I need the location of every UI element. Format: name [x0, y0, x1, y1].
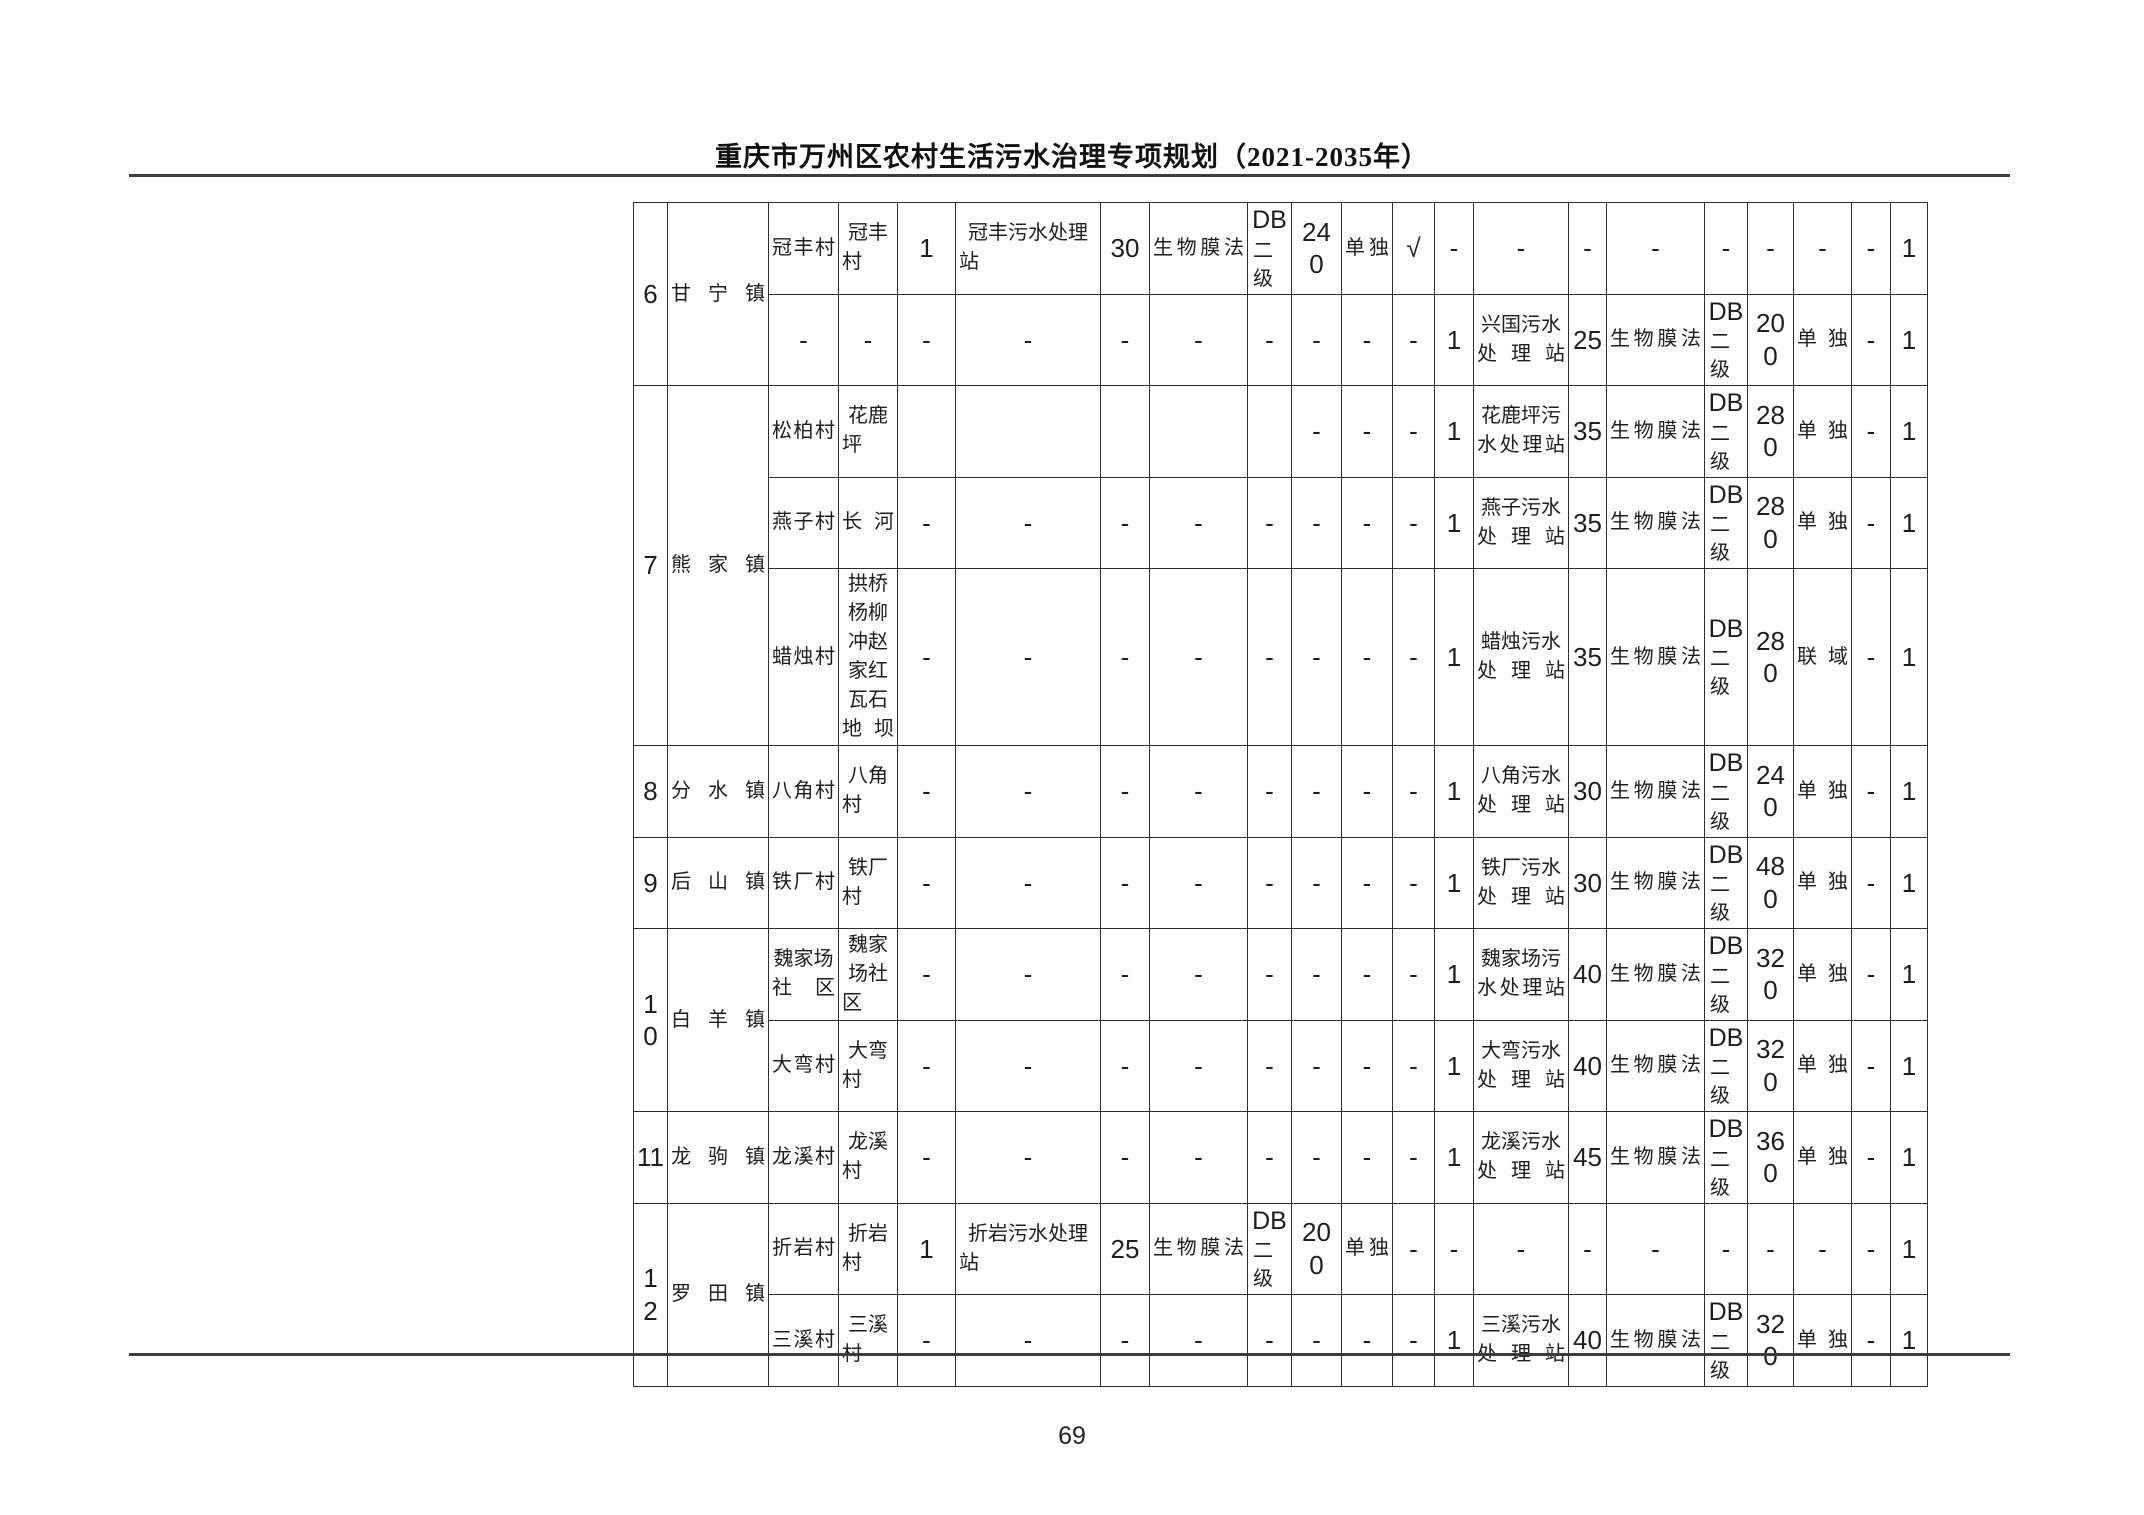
table-cell: -	[1101, 1112, 1150, 1204]
table-cell: DB二级	[1705, 477, 1748, 569]
table-cell: -	[1292, 386, 1342, 478]
table-cell: -	[956, 929, 1101, 1021]
table-cell: -	[1248, 1112, 1292, 1204]
table-cell: -	[956, 837, 1101, 929]
table-cell: DB二级	[1248, 1203, 1292, 1295]
table-cell: DB二级	[1705, 746, 1748, 838]
table-cell: 1	[1435, 569, 1474, 746]
table-row: 燕子村长河--------1燕子污水处理站35生物膜法DB二级280单独-1	[634, 477, 1928, 569]
table-cell: 单独	[1794, 1020, 1852, 1112]
table-cell: 熊家镇	[668, 386, 769, 746]
table-cell: -	[1248, 746, 1292, 838]
table-cell: 40	[1569, 1295, 1607, 1387]
table-cell: 1	[1435, 294, 1474, 386]
table-cell: 花鹿坪污水处理站	[1474, 386, 1569, 478]
table-cell: DB二级	[1705, 929, 1748, 1021]
table-cell: 生物膜法	[1607, 386, 1705, 478]
table-cell: 1	[1435, 477, 1474, 569]
table-cell: -	[1248, 1295, 1292, 1387]
table-cell: -	[898, 1112, 956, 1204]
table-cell: 320	[1748, 929, 1794, 1021]
table-cell: 单独	[1794, 477, 1852, 569]
footer-rule	[129, 1353, 2010, 1356]
table-cell: 龙溪村	[839, 1112, 898, 1204]
table-cell: -	[1342, 929, 1393, 1021]
table-cell: 1	[1435, 1295, 1474, 1387]
table-cell: -	[1393, 294, 1435, 386]
table-cell: 单独	[1794, 837, 1852, 929]
table-cell: 1	[898, 1203, 956, 1295]
page-number: 69	[0, 1422, 2144, 1451]
table-cell: 长河	[839, 477, 898, 569]
table-cell: 8	[634, 746, 668, 838]
table-cell: 240	[1748, 746, 1794, 838]
table-cell	[956, 386, 1101, 478]
table-cell: -	[1150, 477, 1248, 569]
table-cell: 分水镇	[668, 746, 769, 838]
table-cell: -	[1474, 203, 1569, 295]
table-cell: 1	[1891, 203, 1928, 295]
table-cell: 大弯村	[769, 1020, 839, 1112]
table-cell: DB二级	[1705, 1020, 1748, 1112]
table-cell: 生物膜法	[1607, 1020, 1705, 1112]
table-cell: 1	[1891, 294, 1928, 386]
table-cell: 25	[1569, 294, 1607, 386]
table-cell: -	[898, 929, 956, 1021]
table-cell: -	[1292, 477, 1342, 569]
table-cell: -	[1435, 203, 1474, 295]
table-cell: -	[1852, 477, 1891, 569]
table-cell: -	[1569, 1203, 1607, 1295]
table-cell: 200	[1748, 294, 1794, 386]
table-cell: -	[1569, 203, 1607, 295]
table-cell: 燕子污水处理站	[1474, 477, 1569, 569]
table-cell: 折岩村	[839, 1203, 898, 1295]
table-cell: 魏家场社区	[769, 929, 839, 1021]
table-cell: 燕子村	[769, 477, 839, 569]
table-cell: -	[1101, 1020, 1150, 1112]
table-cell: -	[1342, 837, 1393, 929]
table-cell: 生物膜法	[1607, 837, 1705, 929]
table-cell: -	[1342, 746, 1393, 838]
table-cell: -	[898, 477, 956, 569]
table-cell: 铁厂村	[839, 837, 898, 929]
table-cell: 八角村	[839, 746, 898, 838]
table-cell: 蜡烛村	[769, 569, 839, 746]
table-cell: -	[1342, 1020, 1393, 1112]
table-cell: 1	[1891, 477, 1928, 569]
table-row: 9后山镇铁厂村铁厂村--------1铁厂污水处理站30生物膜法DB二级480单…	[634, 837, 1928, 929]
table-cell: -	[1393, 477, 1435, 569]
table-cell: 1	[1435, 837, 1474, 929]
table-cell: -	[1852, 1203, 1891, 1295]
table-cell: -	[1150, 569, 1248, 746]
table-cell: 280	[1748, 569, 1794, 746]
table-cell: -	[1705, 1203, 1748, 1295]
table-cell: 280	[1748, 477, 1794, 569]
table-cell: 1	[1891, 837, 1928, 929]
table-cell: 1	[1435, 386, 1474, 478]
table-cell: -	[1342, 1112, 1393, 1204]
table-cell: -	[1474, 1203, 1569, 1295]
table-cell: 铁厂村	[769, 837, 839, 929]
table-cell	[898, 386, 956, 478]
table-cell: -	[1607, 1203, 1705, 1295]
table-cell: 龙驹镇	[668, 1112, 769, 1204]
table-cell: -	[1150, 294, 1248, 386]
table-cell: 龙溪污水处理站	[1474, 1112, 1569, 1204]
header-rule	[129, 174, 2010, 177]
table-cell: -	[1101, 477, 1150, 569]
table-cell: -	[1852, 569, 1891, 746]
table-cell: 1	[1891, 386, 1928, 478]
table-cell: -	[1248, 1020, 1292, 1112]
table-cell: 单独	[1794, 746, 1852, 838]
table-cell: 30	[1569, 746, 1607, 838]
table-cell: 11	[634, 1112, 668, 1204]
table-cell: 生物膜法	[1607, 929, 1705, 1021]
table-cell: 35	[1569, 477, 1607, 569]
table-cell: 生物膜法	[1607, 294, 1705, 386]
table-cell: -	[1852, 294, 1891, 386]
table-cell: 1	[1435, 746, 1474, 838]
table-cell: -	[898, 1020, 956, 1112]
table-cell: 生物膜法	[1607, 1112, 1705, 1204]
table-cell: -	[956, 1295, 1101, 1387]
table-cell: -	[1852, 1020, 1891, 1112]
table-cell: -	[898, 294, 956, 386]
table-cell: -	[1101, 294, 1150, 386]
table-cell: -	[1794, 203, 1852, 295]
table-cell: 生物膜法	[1607, 477, 1705, 569]
table-cell	[1101, 386, 1150, 478]
table-cell: -	[1393, 569, 1435, 746]
plan-table: 6甘宁镇冠丰村冠丰村1冠丰污水处理站30生物膜法DB二级240单独√------…	[633, 202, 1928, 1387]
table-cell: -	[1852, 837, 1891, 929]
table-cell: 1	[1435, 1112, 1474, 1204]
table-cell: 200	[1292, 1203, 1342, 1295]
table-cell: -	[1342, 1295, 1393, 1387]
table-cell: 魏家场社区	[839, 929, 898, 1021]
table-cell: 1	[1435, 1020, 1474, 1112]
table-cell: 白羊镇	[668, 929, 769, 1112]
table-row: 三溪村三溪村--------1三溪污水处理站40生物膜法DB二级320单独-1	[634, 1295, 1928, 1387]
table-cell: 松柏村	[769, 386, 839, 478]
table-cell: -	[1101, 1295, 1150, 1387]
table-cell: 折岩污水处理站	[956, 1203, 1101, 1295]
table-cell: -	[1607, 203, 1705, 295]
table-cell: -	[1150, 929, 1248, 1021]
table-cell: 单独	[1794, 929, 1852, 1021]
table-cell: 30	[1569, 837, 1607, 929]
table-cell: 三溪村	[839, 1295, 898, 1387]
table-cell: 拱桥杨柳冲赵家红瓦石地坝	[839, 569, 898, 746]
table-cell: -	[898, 1295, 956, 1387]
table-cell: 1	[1891, 1020, 1928, 1112]
table-cell: 八角村	[769, 746, 839, 838]
table-cell: 1	[1891, 1112, 1928, 1204]
table-cell: 龙溪村	[769, 1112, 839, 1204]
table-cell: 联域	[1794, 569, 1852, 746]
table-cell: -	[1292, 1112, 1342, 1204]
table-cell: -	[1248, 929, 1292, 1021]
table-cell: DB二级	[1705, 837, 1748, 929]
table-row: 大弯村大弯村--------1大弯污水处理站40生物膜法DB二级320单独-1	[634, 1020, 1928, 1112]
table-cell: -	[1852, 1112, 1891, 1204]
table-cell: -	[1292, 294, 1342, 386]
table-cell: -	[898, 746, 956, 838]
table-row: 6甘宁镇冠丰村冠丰村1冠丰污水处理站30生物膜法DB二级240单独√------…	[634, 203, 1928, 295]
table-cell: -	[956, 477, 1101, 569]
table-cell: -	[1748, 203, 1794, 295]
table-cell: 1	[1891, 1203, 1928, 1295]
table-cell: 八角污水处理站	[1474, 746, 1569, 838]
table-cell: -	[1292, 929, 1342, 1021]
table-cell: -	[1794, 1203, 1852, 1295]
table-cell	[1150, 386, 1248, 478]
table-cell: -	[1852, 746, 1891, 838]
table-cell: -	[1342, 477, 1393, 569]
table-cell: 花鹿坪	[839, 386, 898, 478]
table-cell: 罗田镇	[668, 1203, 769, 1386]
table-cell: -	[1393, 1203, 1435, 1295]
table-cell: -	[1101, 929, 1150, 1021]
table-cell: -	[956, 1112, 1101, 1204]
table-cell: -	[839, 294, 898, 386]
table-cell: -	[1101, 746, 1150, 838]
table-cell: 单独	[1794, 294, 1852, 386]
table-cell: -	[1150, 1020, 1248, 1112]
table-cell: 6	[634, 203, 668, 386]
table-cell: -	[1248, 294, 1292, 386]
table-cell: -	[1150, 1295, 1248, 1387]
table-cell: -	[1393, 1295, 1435, 1387]
table-cell: -	[1852, 203, 1891, 295]
table-cell: -	[1852, 386, 1891, 478]
table-row: 12罗田镇折岩村折岩村1折岩污水处理站25生物膜法DB二级200单独------…	[634, 1203, 1928, 1295]
table-cell: -	[1393, 386, 1435, 478]
table-cell: 12	[634, 1203, 668, 1386]
table-cell	[1248, 386, 1292, 478]
table-cell: 后山镇	[668, 837, 769, 929]
table-cell: -	[1393, 929, 1435, 1021]
table-cell: -	[898, 569, 956, 746]
table-cell: 360	[1748, 1112, 1794, 1204]
table-cell: DB二级	[1248, 203, 1292, 295]
table-cell: 9	[634, 837, 668, 929]
table-cell: -	[1342, 294, 1393, 386]
table-cell: -	[1292, 746, 1342, 838]
table-cell: -	[1342, 569, 1393, 746]
table-cell: 单独	[1342, 1203, 1393, 1295]
table-cell: 45	[1569, 1112, 1607, 1204]
table-cell: 30	[1101, 203, 1150, 295]
table-cell: 折岩村	[769, 1203, 839, 1295]
page-title: 重庆市万州区农村生活污水治理专项规划（2021-2035年）	[0, 135, 2144, 174]
table-cell: 单独	[1794, 1112, 1852, 1204]
table-cell: 280	[1748, 386, 1794, 478]
table-cell: 三溪村	[769, 1295, 839, 1387]
table-cell: 1	[898, 203, 956, 295]
table-cell: 大弯污水处理站	[1474, 1020, 1569, 1112]
table-cell: 320	[1748, 1020, 1794, 1112]
table-cell: -	[1292, 837, 1342, 929]
table-cell: -	[1292, 569, 1342, 746]
table-cell: 1	[1891, 746, 1928, 838]
table-cell: -	[1435, 1203, 1474, 1295]
table-cell: 蜡烛污水处理站	[1474, 569, 1569, 746]
table-cell: -	[956, 569, 1101, 746]
table-cell: -	[1342, 386, 1393, 478]
table-cell: -	[1705, 203, 1748, 295]
table-cell: 35	[1569, 569, 1607, 746]
table-cell: -	[1393, 837, 1435, 929]
table-cell: 10	[634, 929, 668, 1112]
table-cell: 320	[1748, 1295, 1794, 1387]
table-cell: -	[1852, 1295, 1891, 1387]
table-cell: DB二级	[1705, 569, 1748, 746]
table-cell: 生物膜法	[1607, 1295, 1705, 1387]
table-cell: 1	[1435, 929, 1474, 1021]
table-cell: -	[1748, 1203, 1794, 1295]
table-cell: 三溪污水处理站	[1474, 1295, 1569, 1387]
table-cell: 冠丰村	[839, 203, 898, 295]
table-cell: -	[1150, 837, 1248, 929]
table-cell: -	[1150, 1112, 1248, 1204]
table-cell: 冠丰污水处理站	[956, 203, 1101, 295]
table-cell: 单独	[1794, 386, 1852, 478]
table-cell: -	[898, 837, 956, 929]
table-cell: -	[1393, 746, 1435, 838]
table-cell: 大弯村	[839, 1020, 898, 1112]
table-cell: -	[956, 746, 1101, 838]
table-cell: -	[956, 1020, 1101, 1112]
table-cell: 25	[1101, 1203, 1150, 1295]
table-cell: 40	[1569, 929, 1607, 1021]
table-cell: -	[1393, 1112, 1435, 1204]
table-cell: 生物膜法	[1150, 1203, 1248, 1295]
table-cell: 铁厂污水处理站	[1474, 837, 1569, 929]
table-row: 8分水镇八角村八角村--------1八角污水处理站30生物膜法DB二级240单…	[634, 746, 1928, 838]
table-cell: 1	[1891, 1295, 1928, 1387]
table-row: ----------1兴国污水处理站25生物膜法DB二级200单独-1	[634, 294, 1928, 386]
table-cell: -	[1101, 569, 1150, 746]
table-cell: 兴国污水处理站	[1474, 294, 1569, 386]
table-cell: DB二级	[1705, 1112, 1748, 1204]
table-cell: 生物膜法	[1150, 203, 1248, 295]
table-cell: 1	[1891, 929, 1928, 1021]
table-cell: 生物膜法	[1607, 569, 1705, 746]
table-cell: 魏家场污水处理站	[1474, 929, 1569, 1021]
table-cell: 冠丰村	[769, 203, 839, 295]
table-cell: 生物膜法	[1607, 746, 1705, 838]
table-row: 10白羊镇魏家场社区魏家场社区--------1魏家场污水处理站40生物膜法DB…	[634, 929, 1928, 1021]
table-cell: DB二级	[1705, 294, 1748, 386]
table-cell: 7	[634, 386, 668, 746]
table-cell: 甘宁镇	[668, 203, 769, 386]
table-cell: -	[956, 294, 1101, 386]
table-cell: 240	[1292, 203, 1342, 295]
table-cell: DB二级	[1705, 1295, 1748, 1387]
table-row: 11龙驹镇龙溪村龙溪村--------1龙溪污水处理站45生物膜法DB二级360…	[634, 1112, 1928, 1204]
table-cell: -	[769, 294, 839, 386]
table-cell: -	[1101, 837, 1150, 929]
table-cell: -	[1852, 929, 1891, 1021]
table-cell: 单独	[1342, 203, 1393, 295]
table-cell: DB二级	[1705, 386, 1748, 478]
table-cell: -	[1248, 837, 1292, 929]
table-cell: 35	[1569, 386, 1607, 478]
table-cell: 1	[1891, 569, 1928, 746]
table-cell: -	[1150, 746, 1248, 838]
table-cell: 40	[1569, 1020, 1607, 1112]
table-cell: -	[1292, 1020, 1342, 1112]
table-cell: -	[1248, 569, 1292, 746]
table-cell: 单独	[1794, 1295, 1852, 1387]
table-cell: -	[1248, 477, 1292, 569]
table-cell: -	[1393, 1020, 1435, 1112]
table-row: 蜡烛村拱桥杨柳冲赵家红瓦石地坝--------1蜡烛污水处理站35生物膜法DB二…	[634, 569, 1928, 746]
table-cell: √	[1393, 203, 1435, 295]
table-row: 7熊家镇松柏村花鹿坪---1花鹿坪污水处理站35生物膜法DB二级280单独-1	[634, 386, 1928, 478]
table-cell: -	[1292, 1295, 1342, 1387]
table-cell: 480	[1748, 837, 1794, 929]
